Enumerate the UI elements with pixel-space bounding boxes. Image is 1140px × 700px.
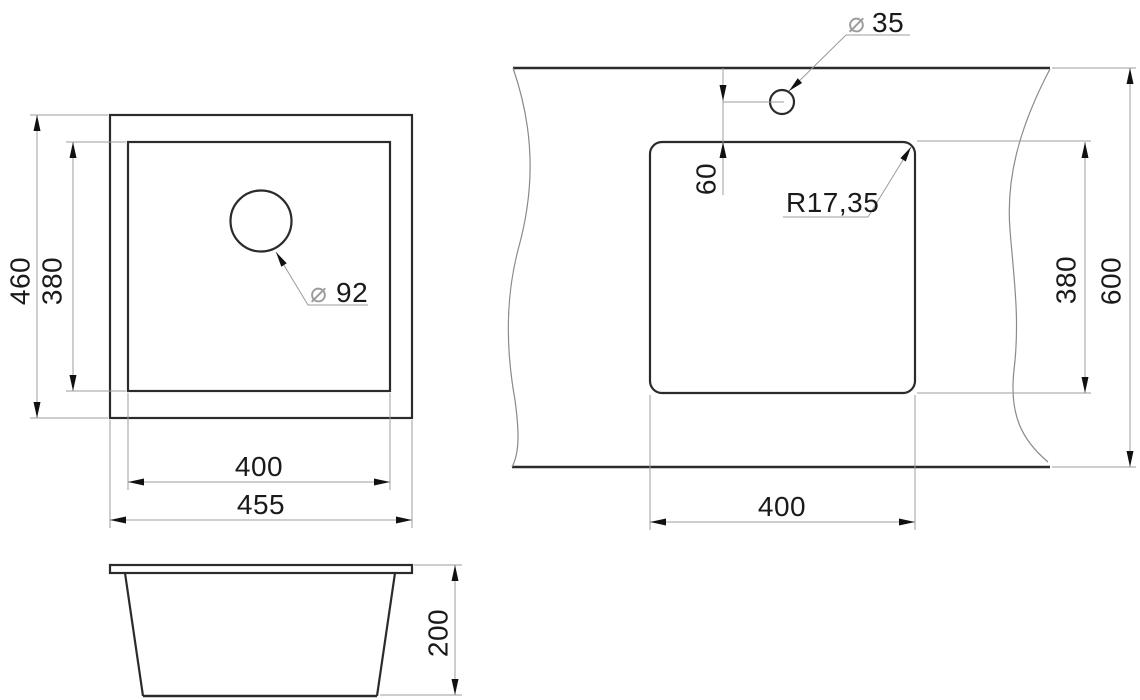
arrowhead-left — [110, 517, 126, 524]
sink-bowl-edge — [128, 142, 390, 391]
arrowhead-left — [128, 479, 144, 486]
dim-label-inner-width: 400 — [235, 451, 283, 482]
dim-label-corner-radius: R17,35 — [786, 187, 879, 218]
diameter-symbol: ⌀ — [848, 7, 865, 38]
dim-label-hole-offset: 60 — [690, 163, 721, 195]
break-line-left — [508, 68, 530, 467]
arrowhead-right — [374, 479, 390, 486]
arrowhead-leader — [900, 147, 911, 162]
arrowhead-down — [452, 679, 459, 695]
arrowhead-right — [396, 517, 412, 524]
dim-label-outer-height: 460 — [4, 257, 35, 305]
arrowhead-up — [1127, 68, 1134, 84]
arrowhead-down — [70, 375, 77, 391]
arrowhead-down — [720, 85, 727, 101]
break-line-right — [1009, 69, 1050, 462]
dim-label-drain-diameter: 92 — [336, 277, 368, 308]
dim-label-cutout-height: 380 — [1050, 256, 1081, 304]
sink-drawing-canvas: 460 380 ⌀ 92 400 455 — [0, 0, 1140, 700]
arrowhead-down — [34, 402, 41, 418]
arrowhead-leader — [276, 252, 287, 267]
sink-flange — [110, 565, 412, 573]
arrowhead-down — [1082, 377, 1089, 393]
dim-label-outer-width: 455 — [237, 489, 285, 520]
drain-hole — [231, 191, 292, 252]
arrowhead-up — [70, 142, 77, 158]
arrowhead-up — [1082, 142, 1089, 158]
sink-side-right — [377, 573, 395, 696]
arrowhead-down — [1127, 451, 1134, 467]
arrowhead-left — [650, 519, 666, 526]
diameter-symbol: ⌀ — [310, 277, 327, 308]
dim-label-hole-diameter: 35 — [872, 7, 904, 38]
dim-label-sink-depth: 200 — [422, 609, 453, 657]
side-view: 200 — [110, 565, 462, 696]
dim-label-counter-depth: 600 — [1095, 257, 1126, 305]
arrowhead-up — [720, 142, 727, 158]
cutout-view: ⌀ 35 60 R17,35 380 600 400 — [508, 7, 1136, 530]
arrowhead-up — [452, 565, 459, 581]
dim-label-inner-height: 380 — [36, 257, 67, 305]
top-view: 460 380 ⌀ 92 400 455 — [4, 115, 412, 528]
sink-outer-rim — [110, 115, 412, 418]
dim-label-cutout-width: 400 — [758, 491, 806, 522]
arrowhead-right — [899, 519, 915, 526]
arrowhead-up — [34, 115, 41, 131]
technical-drawing-page: 460 380 ⌀ 92 400 455 — [0, 0, 1140, 700]
sink-side-left — [125, 573, 143, 696]
